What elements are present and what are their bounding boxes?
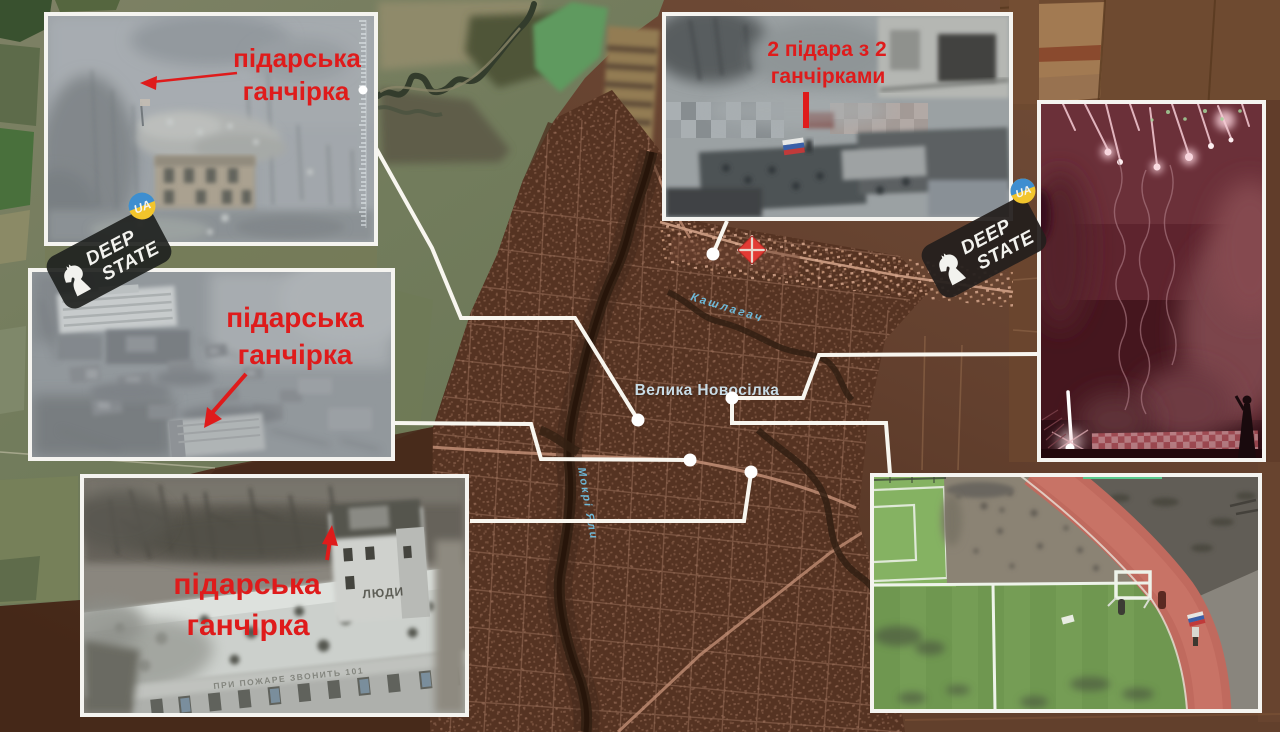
svg-text:2 підара з 2: 2 підара з 2 bbox=[767, 38, 886, 61]
svg-text:ЛЮДИ: ЛЮДИ bbox=[362, 584, 405, 601]
svg-text:ганчірками: ганчірками bbox=[771, 65, 886, 88]
svg-text:підарська: підарська bbox=[226, 302, 364, 333]
svg-text:ганчірка: ганчірка bbox=[243, 76, 350, 106]
svg-text:ганчірка: ганчірка bbox=[238, 339, 353, 370]
svg-text:ганчірка: ганчірка bbox=[186, 609, 309, 642]
svg-text:підарська: підарська bbox=[173, 568, 321, 601]
svg-text:підарська: підарська bbox=[233, 43, 361, 73]
